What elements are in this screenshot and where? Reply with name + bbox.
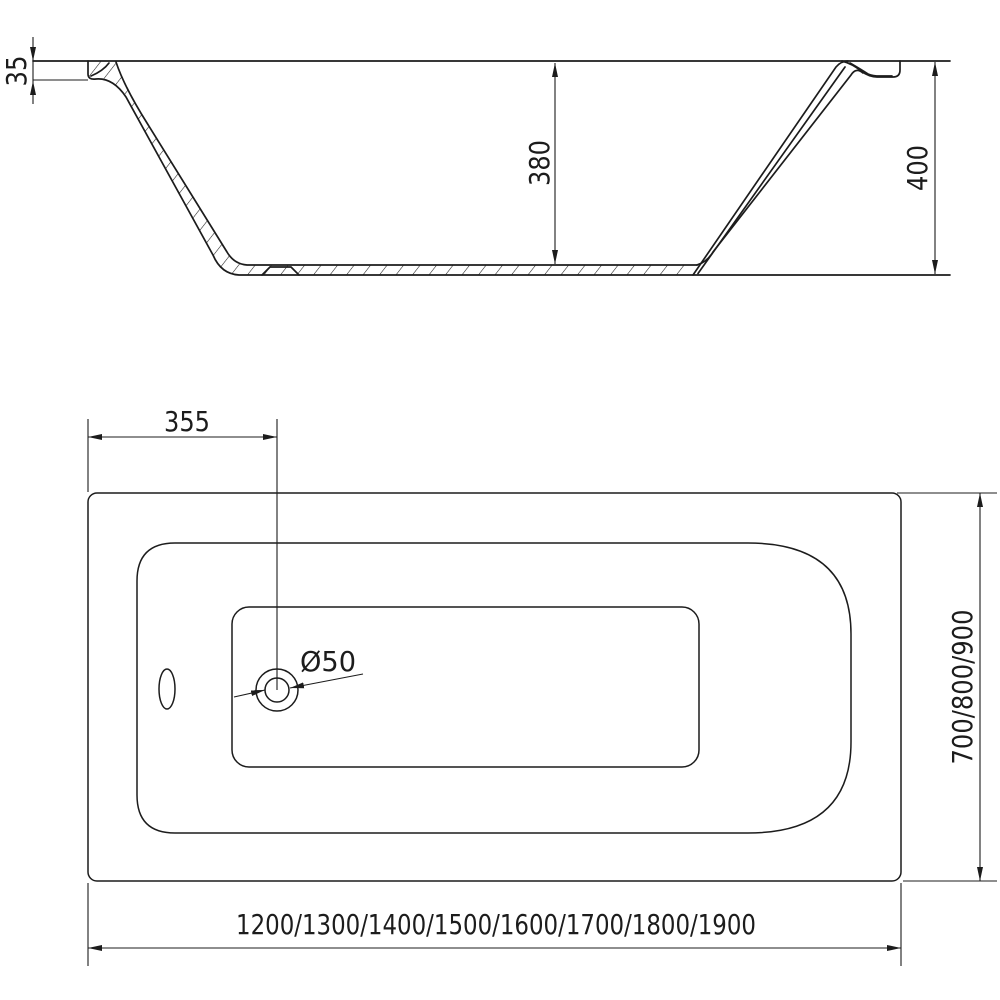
tub-outer-rim-rect — [88, 493, 901, 881]
dim-inner-depth-label: 380 — [523, 140, 556, 186]
side-section-view: 35 380 400 — [0, 37, 950, 275]
drawing-canvas: 35 380 400 355 — [0, 0, 1000, 1000]
dim-drain-offset-label: 355 — [164, 405, 210, 438]
right-rim-inner-arc — [850, 63, 892, 76]
side-view-dimensions — [33, 37, 935, 274]
dim-total-height-label: 400 — [901, 145, 934, 191]
tub-floor-rect — [232, 607, 699, 767]
overflow-hole — [159, 669, 175, 709]
plan-top-view: 355 Ø50 1200/1300/1400/1500/1600/1700/18… — [88, 405, 997, 966]
drain-leader-left — [234, 690, 265, 697]
dim-width-options-label: 700/800/900 — [946, 610, 979, 765]
tub-inner-rim-edge — [137, 543, 851, 833]
plan-view-dimensions — [88, 419, 997, 966]
plan-view-outlines — [88, 493, 901, 881]
right-wall-middle-edge — [698, 67, 845, 274]
dim-drain-diameter-label: Ø50 — [300, 645, 356, 678]
dim-rim-height-label: 35 — [0, 56, 33, 87]
section-hatch-fill — [88, 61, 690, 275]
right-wall-outer-surface — [693, 61, 848, 275]
right-wall-inner-surface — [697, 70, 863, 265]
plan-view-labels: 355 Ø50 1200/1300/1400/1500/1600/1700/18… — [164, 405, 979, 941]
dim-length-options-label: 1200/1300/1400/1500/1600/1700/1800/1900 — [236, 908, 756, 941]
bathtub-technical-drawing: 35 380 400 355 — [0, 0, 1000, 1000]
